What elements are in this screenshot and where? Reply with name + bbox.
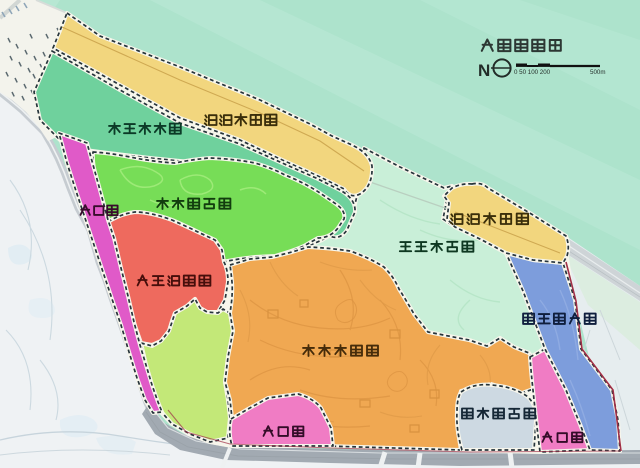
- svg-text:0 50 100 200: 0 50 100 200: [514, 69, 551, 76]
- svg-text:N: N: [478, 61, 490, 80]
- svg-text:500m: 500m: [590, 69, 605, 76]
